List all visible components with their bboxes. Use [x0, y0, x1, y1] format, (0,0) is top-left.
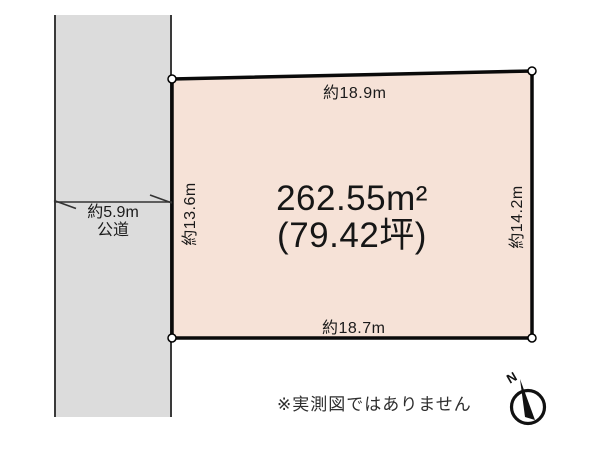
- road-width-label: 約5.9m: [54, 204, 172, 222]
- compass-north-label: N: [504, 369, 520, 387]
- corner-marker-top-right: [528, 67, 536, 75]
- corner-marker-bottom-left: [168, 334, 176, 342]
- plot-area-text: 262.55m² (79.42坪): [172, 180, 532, 254]
- road-type-label: 公道: [54, 222, 172, 240]
- corner-marker-bottom-right: [528, 334, 536, 342]
- disclaimer-note: ※実測図ではありません: [277, 390, 472, 415]
- corner-marker-top-left: [168, 75, 176, 83]
- road-label-block: 約5.9m 公道: [54, 204, 172, 240]
- plot-area-tsubo: (79.42坪): [172, 217, 532, 254]
- dimension-label-top: 約18.9m: [323, 79, 386, 103]
- dimension-label-bottom: 約18.7m: [322, 314, 385, 338]
- plot-area-m2: 262.55m²: [172, 180, 532, 217]
- land-plot-diagram: 約18.9m 約18.7m 約13.6m 約14.2m 262.55m² (79…: [0, 0, 600, 450]
- compass-icon: N: [500, 368, 556, 430]
